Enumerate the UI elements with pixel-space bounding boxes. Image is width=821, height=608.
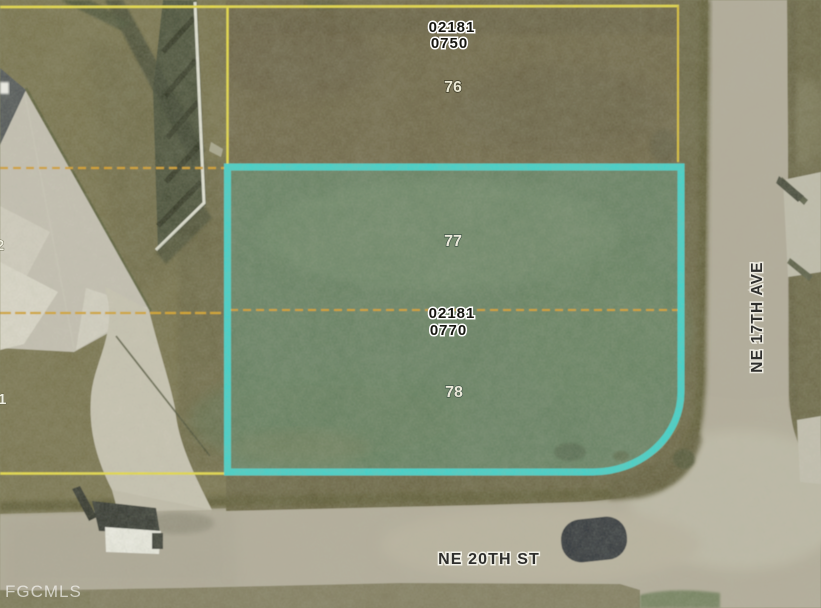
svg-text:0750: 0750: [431, 35, 468, 52]
svg-text:FGCMLS: FGCMLS: [5, 582, 82, 601]
svg-text:02181: 02181: [429, 19, 476, 36]
svg-text:NE 20TH ST: NE 20TH ST: [438, 551, 540, 568]
svg-text:1: 1: [0, 391, 6, 408]
svg-text:02181: 02181: [429, 305, 476, 322]
svg-text:77: 77: [444, 233, 462, 250]
svg-text:0770: 0770: [430, 322, 467, 339]
svg-text:78: 78: [445, 384, 463, 401]
svg-text:76: 76: [444, 79, 462, 96]
svg-text:NE 17TH AVE: NE 17TH AVE: [749, 261, 766, 372]
svg-text:2: 2: [0, 237, 4, 254]
